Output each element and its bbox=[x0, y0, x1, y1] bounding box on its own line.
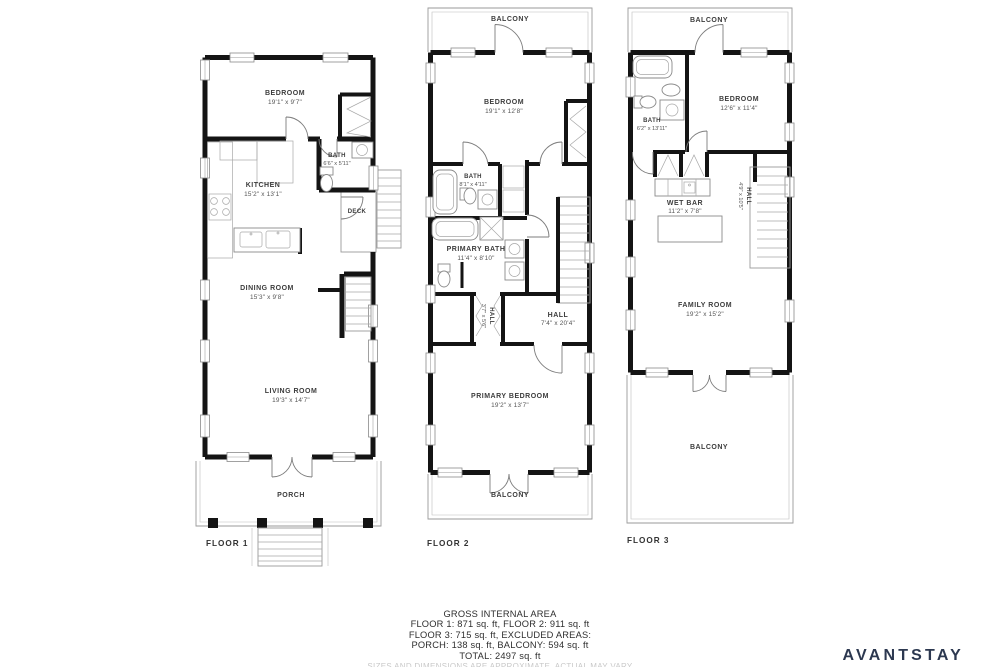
floor1-label: FLOOR 1 bbox=[206, 539, 248, 548]
room-label-f1-living: LIVING ROOM bbox=[265, 388, 318, 395]
floor3-wetbar-fixtures bbox=[655, 155, 722, 242]
room-label-f2-bedroom: BEDROOM bbox=[484, 99, 524, 106]
room-label-f3-bedroom: BEDROOM bbox=[719, 96, 759, 103]
floor1-porch-structure bbox=[196, 461, 381, 566]
room-label-f1-kitchen: KITCHEN bbox=[246, 182, 281, 189]
room-label-f2-balcony-bottom: BALCONY bbox=[491, 492, 529, 499]
room-dims-f1-living: 19'3" x 14'7" bbox=[272, 397, 310, 404]
room-label-f2-bath: BATH bbox=[464, 174, 482, 180]
room-dims-f3-bath: 6'2" x 13'11" bbox=[637, 126, 667, 132]
room-label-f1-dining: DINING ROOM bbox=[240, 285, 294, 292]
room-dims-f3-wetbar: 11'2" x 7'8" bbox=[668, 208, 701, 215]
room-label-f2-primary-bedroom: PRIMARY BEDROOM bbox=[471, 393, 549, 400]
room-label-f3-bath: BATH bbox=[643, 118, 661, 124]
floor1-stairs bbox=[346, 277, 372, 331]
summary-title: GROSS INTERNAL AREA bbox=[0, 609, 1000, 619]
floor3-plan: BALCONY BATH 6'2" x 13'11" BEDROOM 12'6"… bbox=[626, 8, 794, 545]
room-dims-f3-bedroom: 12'6" x 11'4" bbox=[720, 105, 757, 112]
summary-line-2: FLOOR 3: 715 sq. ft, EXCLUDED AREAS: bbox=[0, 630, 1000, 640]
room-dims-f2-bath: 8'1" x 4'11" bbox=[459, 182, 486, 188]
avantstay-logo: AVANTSTAY bbox=[842, 647, 964, 665]
floor2-plan: BALCONY BEDROOM 19'1" x 12'8" BATH 8'1" … bbox=[426, 8, 594, 548]
floor-plan-page: BEDROOM 19'1" x 9'7" BATH 6'6" x 5'11" K… bbox=[0, 0, 1000, 667]
room-label-f3-wetbar: WET BAR bbox=[667, 200, 703, 207]
room-label-f1-bath: BATH bbox=[328, 153, 346, 159]
room-dims-f2-hall-closet: 3'7" x 5'6" bbox=[480, 304, 486, 328]
room-label-f2-balcony-top: BALCONY bbox=[491, 16, 529, 23]
floor1-bath-fixtures bbox=[320, 97, 373, 192]
room-dims-f2-primary-bedroom: 19'2" x 13'7" bbox=[491, 402, 529, 409]
floor2-primary-bath-fixtures bbox=[432, 106, 586, 336]
summary-line-1: FLOOR 1: 871 sq. ft, FLOOR 2: 911 sq. ft bbox=[0, 619, 1000, 629]
floor3-stairs bbox=[750, 167, 790, 268]
room-label-f2-primary-bath: PRIMARY BATH bbox=[447, 246, 506, 253]
room-label-f1-porch: PORCH bbox=[277, 492, 305, 499]
room-dims-f1-bath: 6'6" x 5'11" bbox=[323, 161, 350, 167]
floor1-kitchen-fixtures bbox=[208, 141, 301, 258]
room-label-f3-hall: HALL bbox=[745, 187, 751, 205]
room-label-f3-balcony-top: BALCONY bbox=[690, 17, 728, 24]
room-label-f2-hall: HALL bbox=[548, 312, 569, 319]
room-dims-f2-bedroom: 19'1" x 12'8" bbox=[485, 108, 523, 115]
room-label-f1-bedroom: BEDROOM bbox=[265, 90, 305, 97]
room-label-f3-balcony-bottom: BALCONY bbox=[690, 444, 728, 451]
room-dims-f3-hall: 4'9" x 10'5" bbox=[737, 182, 743, 210]
room-dims-f3-family-room: 19'2" x 15'2" bbox=[686, 311, 724, 318]
room-label-f3-family-room: FAMILY ROOM bbox=[678, 302, 732, 309]
floor2-label: FLOOR 2 bbox=[427, 539, 469, 548]
room-dims-f1-kitchen: 15'2" x 13'1" bbox=[244, 191, 282, 198]
room-label-f1-deck: DECK bbox=[348, 209, 367, 215]
room-dims-f1-bedroom: 19'1" x 9'7" bbox=[268, 99, 302, 106]
floor-plan-canvas: BEDROOM 19'1" x 9'7" BATH 6'6" x 5'11" K… bbox=[0, 0, 1000, 667]
floor3-label: FLOOR 3 bbox=[627, 536, 669, 545]
room-dims-f2-hall: 7'4" x 20'4" bbox=[541, 320, 575, 327]
room-label-f2-hall-closet: HALL bbox=[488, 307, 494, 325]
floor1-plan: BEDROOM 19'1" x 9'7" BATH 6'6" x 5'11" K… bbox=[196, 53, 401, 566]
room-dims-f1-dining: 15'3" x 9'8" bbox=[250, 294, 284, 301]
room-dims-f2-primary-bath: 11'4" x 8'10" bbox=[457, 255, 494, 262]
floor3-bath-fixtures bbox=[633, 56, 684, 120]
